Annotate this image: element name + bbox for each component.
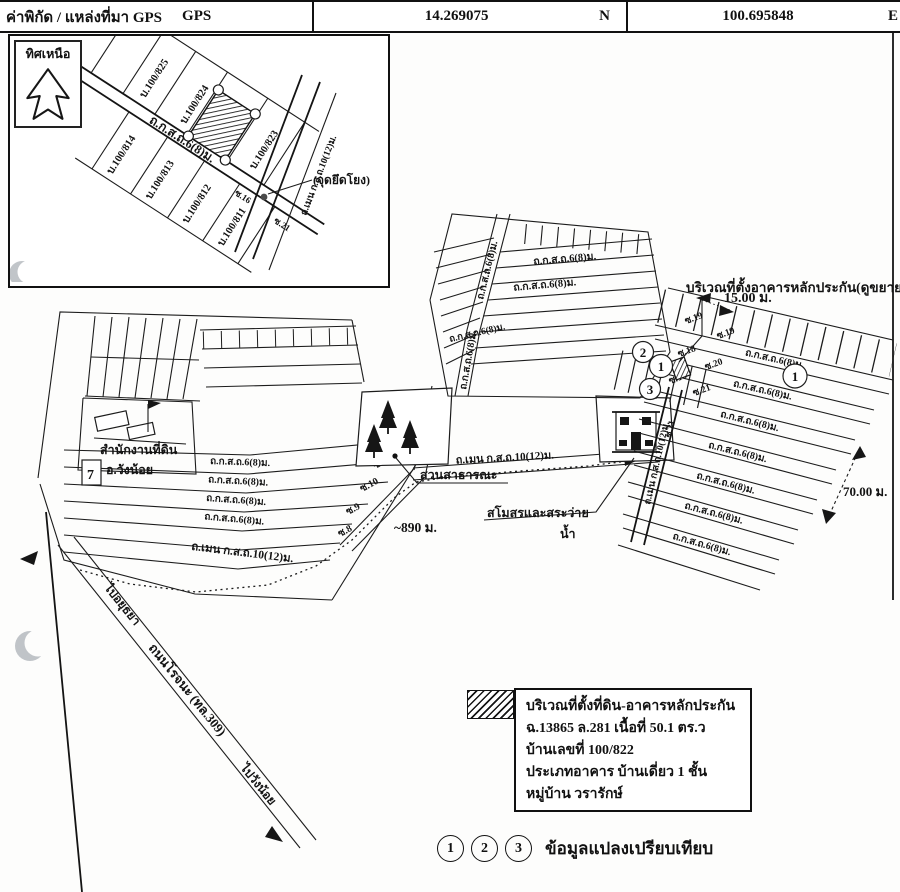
- main-road-label-c: ถ.เมน ก.ส.ถ.10(12)ม.: [191, 541, 295, 565]
- road-68-label-b6: ถ.ก.ส.ถ.6(8)ม.: [683, 501, 744, 527]
- legend-line-2: ฉ.13865 ล.281 เนื้อที่ 50.1 ตร.ว: [526, 718, 740, 740]
- coords-source-label: ค่าพิกัด / แหล่งที่มา GPS: [6, 5, 162, 29]
- legend-line-1: บริเวณที่ตั้งที่ดิน-อาคารหลักประกัน: [526, 696, 740, 718]
- land-office-building-2: [127, 422, 155, 439]
- north-label: ทิศเหนือ: [16, 44, 80, 64]
- crescent-stamp-1: [10, 261, 41, 283]
- road-68-label-b4: ถ.ก.ส.ถ.6(8)ม.: [707, 440, 768, 465]
- road-68-label-b3: ถ.ก.ส.ถ.6(8)ม.: [719, 409, 780, 434]
- soi20-label: ซ.20: [704, 357, 725, 373]
- legend-hatch-swatch: [467, 690, 514, 719]
- land-office-district-label: อ.วังน้อย: [106, 463, 153, 477]
- main-road-label-east: ถ.เมน ก.ส.ถ.10(12)ม.: [455, 449, 554, 466]
- route-dotted-line: ~890 ม.: [80, 456, 636, 592]
- gps-source-value: GPS: [182, 8, 211, 25]
- route-distance-label: ~890 ม.: [394, 520, 437, 535]
- gps-header-row: ค่าพิกัด / แหล่งที่มา GPS GPS 14.269075 …: [0, 0, 900, 33]
- north-compass-box: ทิศเหนือ: [14, 40, 82, 128]
- arrow-to-ayutthaya-icon: [20, 551, 38, 565]
- club-pool-label: สโมสรและสระว่าย: [487, 505, 589, 520]
- gps-header-label-cell: ค่าพิกัด / แหล่งที่มา GPS GPS: [0, 2, 314, 31]
- subject-callout-label: บริเวณที่ตั้งอาคารหลักประกัน(ดูขยาย): [686, 277, 900, 296]
- road-68-label-c2: ถ.ก.ส.ถ.6(8)ม.: [208, 474, 269, 488]
- marker-3: 3: [640, 379, 661, 400]
- comparison-data-label: ข้อมูลแปลงเปรียบเทียบ: [545, 835, 713, 862]
- marker-2: 2: [633, 342, 654, 363]
- soi18-label: ซ.18: [677, 344, 698, 360]
- legend-line-5: หมู่บ้าน วรารักษ์: [526, 784, 740, 806]
- land-office-building-1: [95, 411, 129, 431]
- depth-dimension-label: 70.00 ม.: [843, 484, 887, 499]
- legend-line-4: ประเภทอาคาร บ้านเดี่ยว 1 ชั้น: [526, 762, 740, 784]
- footer-marker-2: 2: [471, 835, 498, 862]
- arrow-to-wangnoi-icon: [265, 826, 283, 842]
- inset-house-823: บ.100/823: [248, 129, 281, 172]
- soi9-label: ซ.9: [344, 501, 362, 517]
- road-68-label-a3: ถ.ก.ส.ถ.6(8)ม.: [475, 239, 500, 300]
- depth-arrow-up-icon: [852, 446, 866, 460]
- park-leader-dot: [392, 453, 397, 458]
- plot-ticks-a: [525, 234, 648, 245]
- svg-text:1: 1: [658, 359, 665, 374]
- clubhouse-icon: [612, 412, 660, 452]
- land-office: สำนักงานที่ดิน อ.วังน้อย 7: [78, 398, 196, 485]
- soi8-label: ซ.8: [336, 523, 354, 539]
- crescent-stamp-2: [15, 630, 52, 662]
- footer-marker-3: 3: [505, 835, 532, 862]
- inset-soi21-label: ซ.21: [272, 215, 292, 233]
- to-ayutthaya-label: ไปอยุธยา: [100, 579, 145, 629]
- soi21-label: ซ.21: [692, 383, 713, 399]
- comparison-markers-row: 1 2 3 ข้อมูลแปลงเปรียบเทียบ: [437, 835, 713, 862]
- road-68-label-a2: ถ.ก.ส.ถ.6(8)ม.: [513, 277, 577, 293]
- flag-icon: [148, 400, 161, 409]
- longitude-direction: E: [888, 8, 898, 25]
- anchor-dot: [261, 194, 268, 201]
- road-68-label-c4: ถ.ก.ส.ถ.6(8)ม.: [204, 511, 265, 527]
- road-68-label-b7: ถ.ก.ส.ถ.6(8)ม.: [671, 531, 732, 558]
- road-68-label-c3: ถ.ก.ส.ถ.6(8)ม.: [206, 493, 267, 508]
- svg-text:1: 1: [792, 369, 799, 384]
- inset-anchor-label: (จุดยึดโยง): [313, 172, 370, 188]
- latitude-direction: N: [599, 8, 610, 25]
- legend-box: บริเวณที่ตั้งที่ดิน-อาคารหลักประกัน ฉ.13…: [514, 688, 752, 812]
- width-dimension-label: 15.00 ม.: [724, 291, 772, 306]
- latitude-cell: 14.269075 N: [314, 2, 628, 31]
- road-68-label-c1: ถ.ก.ส.ถ.6(8)ม.: [210, 456, 271, 469]
- rojana-road-label: ถนนโรจนะ (ทล.309): [146, 640, 230, 739]
- inset-house-814: บ.100/814: [105, 133, 138, 176]
- longitude-value: 100.695848: [628, 8, 888, 25]
- road-68-label-a1: ถ.ก.ส.ถ.6(8)ม.: [533, 251, 597, 267]
- club-pool-label-2: น้ำ: [560, 524, 576, 541]
- latitude-value: 14.269075: [314, 8, 599, 25]
- park-label: สวนสาธารณะ: [420, 468, 498, 482]
- svg-text:2: 2: [640, 345, 647, 360]
- land-office-label: สำนักงานที่ดิน: [100, 441, 178, 457]
- soi10-label: ซ.10: [358, 476, 380, 495]
- dim-arrow-right-icon: [719, 305, 734, 316]
- survey-map-page: ค่าพิกัด / แหล่งที่มา GPS GPS 14.269075 …: [0, 0, 900, 892]
- rojana-road: ไปอยุธยา ถนนโรจนะ (ทล.309) ไปวังน้อย: [20, 512, 316, 892]
- inset-location-map: ถ.ก.ส.ถ.6(8)ม. ซ.16 ซ.21 บ.100/825 บ.100…: [8, 34, 390, 288]
- north-arrow-icon: [19, 64, 77, 124]
- marker-1-far: 1: [783, 364, 807, 388]
- depth-arrow-down-icon: [822, 509, 836, 524]
- block-top-middle: ถ.ก.ส.ถ.6(8)ม. ถ.ก.ส.ถ.6(8)ม. ถ.ก.ส.ถ.6(…: [430, 214, 670, 398]
- svg-text:3: 3: [647, 382, 654, 397]
- road-68-label-b5: ถ.ก.ส.ถ.6(8)ม.: [695, 471, 756, 497]
- footer-marker-1: 1: [437, 835, 464, 862]
- marker-1: 1: [650, 355, 673, 378]
- legend-line-3: บ้านเลขที่ 100/822: [526, 740, 740, 762]
- to-wangnoi-label: ไปวังน้อย: [236, 759, 280, 808]
- soi19-label-1: ซ.19: [684, 311, 705, 327]
- soi19-label-2: ซ.19: [716, 326, 737, 342]
- seven-eleven-digit: 7: [87, 468, 94, 483]
- inset-house-825: บ.100/825: [138, 57, 171, 100]
- longitude-cell: 100.695848 E: [628, 2, 900, 31]
- block-right: ถ.ก.ส.ถ.6(8)ม. ถ.ก.ส.ถ.6(8)ม. ถ.ก.ส.ถ.6(…: [618, 288, 893, 590]
